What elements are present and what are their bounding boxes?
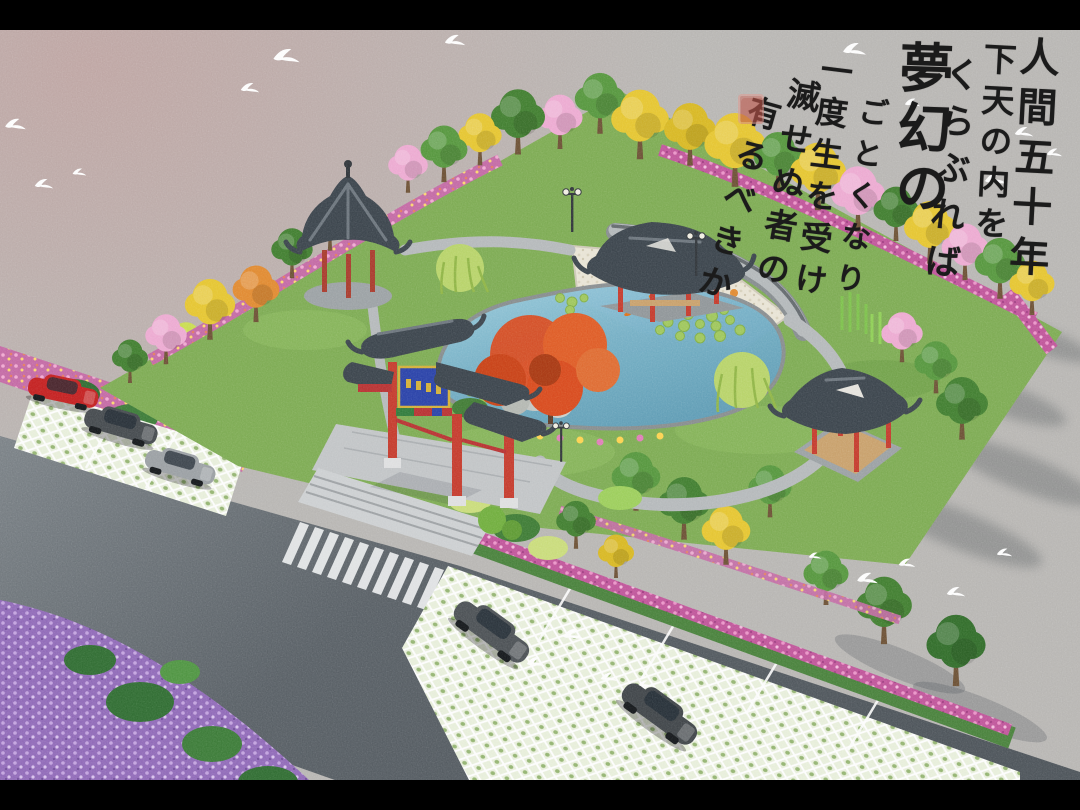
calligraphy-column-4: 夢幻の <box>878 39 963 222</box>
seal-stamp <box>738 94 764 124</box>
rendering-canvas: 人間五十年 下天の内を くらぶれば 夢幻の ごとくなり 一度生を受け 滅せぬ者の… <box>0 0 1080 810</box>
letterbox-bottom <box>0 780 1080 810</box>
letterbox-top <box>0 0 1080 30</box>
